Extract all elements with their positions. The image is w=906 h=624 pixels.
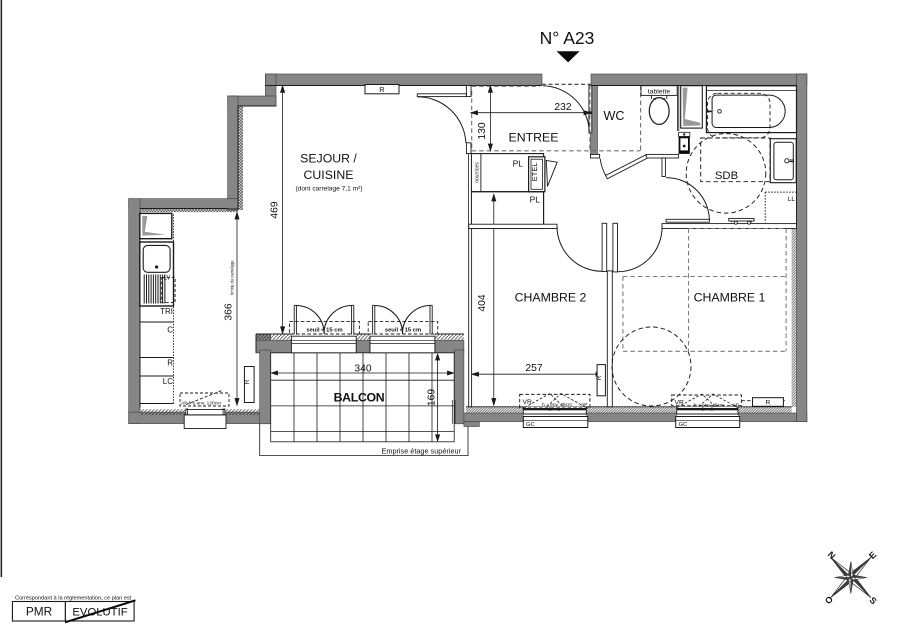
- svg-text:232: 232: [554, 102, 571, 113]
- svg-text:130: 130: [477, 122, 488, 139]
- svg-text:CUISINE: CUISINE: [304, 168, 354, 182]
- svg-text:SDB: SDB: [715, 170, 738, 182]
- svg-text:R: R: [596, 375, 603, 380]
- svg-text:h = env. 45cm: h = env. 45cm: [542, 402, 572, 408]
- svg-text:GC: GC: [526, 422, 535, 428]
- svg-text:(dont carrelage 7,1 m²): (dont carrelage 7,1 m²): [295, 186, 362, 193]
- svg-text:R: R: [167, 359, 173, 368]
- svg-text:LV: LV: [164, 276, 171, 282]
- svg-text:R: R: [766, 400, 771, 407]
- svg-text:AP: AP: [581, 402, 587, 408]
- svg-text:366: 366: [224, 303, 235, 320]
- svg-text:AP: AP: [733, 402, 739, 408]
- svg-text:N° A23: N° A23: [540, 28, 595, 48]
- svg-text:tablette: tablette: [648, 88, 671, 95]
- svg-text:PMR: PMR: [26, 605, 52, 619]
- svg-text:LC: LC: [163, 377, 173, 386]
- svg-text:WC: WC: [604, 109, 625, 123]
- svg-text:CHAMBRE 2: CHAMBRE 2: [515, 291, 587, 305]
- svg-text:Corréspondant à la réglementat: Corréspondant à la réglementation, ce pl…: [15, 596, 132, 602]
- svg-text:VR: VR: [523, 399, 533, 406]
- svg-text:LL: LL: [788, 196, 796, 203]
- svg-text:AP h ≤ env. 120cm: AP h ≤ env. 120cm: [181, 400, 221, 406]
- svg-text:404: 404: [477, 294, 488, 311]
- svg-text:469: 469: [270, 201, 281, 218]
- svg-text:ENTREE: ENTREE: [509, 131, 559, 145]
- svg-text:nourrices: nourrices: [474, 162, 480, 183]
- svg-text:R: R: [379, 85, 385, 94]
- svg-text:PL: PL: [513, 159, 524, 169]
- svg-text:BALCON: BALCON: [334, 391, 385, 405]
- svg-text:Emprise étage supérieur: Emprise étage supérieur: [382, 447, 462, 456]
- svg-text:R: R: [244, 379, 251, 384]
- svg-text:SEJOUR /: SEJOUR /: [300, 152, 357, 166]
- svg-text:257: 257: [525, 363, 542, 374]
- svg-text:VR: VR: [675, 399, 685, 406]
- svg-text:GC: GC: [679, 422, 688, 428]
- svg-text:ETEL: ETEL: [530, 162, 539, 181]
- svg-text:h = env. 45cm: h = env. 45cm: [694, 402, 724, 408]
- svg-text:340: 340: [354, 364, 371, 375]
- svg-text:PL: PL: [530, 194, 541, 204]
- svg-text:seuil < 15 cm: seuil < 15 cm: [306, 327, 342, 333]
- svg-text:C: C: [167, 326, 173, 335]
- svg-text:seuil < 15 cm: seuil < 15 cm: [385, 327, 421, 333]
- svg-text:TRI: TRI: [160, 307, 173, 316]
- svg-text:CHAMBRE 1: CHAMBRE 1: [694, 291, 766, 305]
- svg-text:169: 169: [427, 389, 438, 406]
- svg-text:limite du carrelage: limite du carrelage: [230, 260, 235, 295]
